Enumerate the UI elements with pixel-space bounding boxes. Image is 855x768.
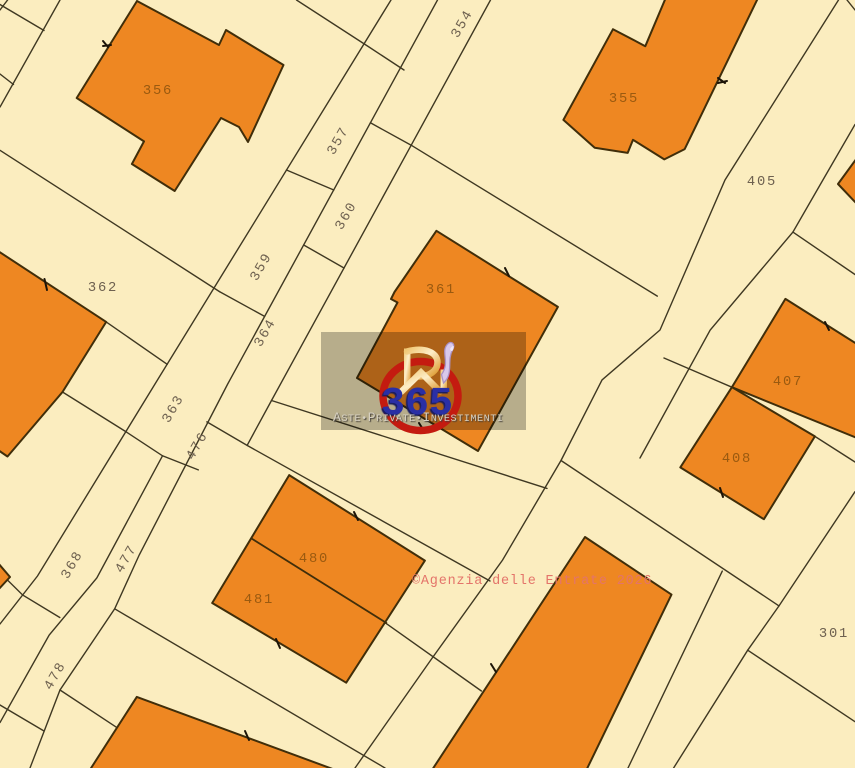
svg-text:481: 481 [244, 593, 274, 608]
svg-text:405: 405 [747, 175, 777, 190]
svg-text:301: 301 [819, 627, 849, 642]
svg-text:©Agenzia delle Entrate 2026: ©Agenzia delle Entrate 2026 [412, 574, 652, 589]
svg-text:407: 407 [773, 375, 803, 390]
svg-text:408: 408 [722, 452, 752, 467]
svg-text:355: 355 [609, 92, 639, 107]
svg-text:361: 361 [426, 283, 456, 298]
svg-text:362: 362 [88, 281, 118, 296]
svg-text:480: 480 [299, 552, 329, 567]
svg-text:356: 356 [143, 84, 173, 99]
